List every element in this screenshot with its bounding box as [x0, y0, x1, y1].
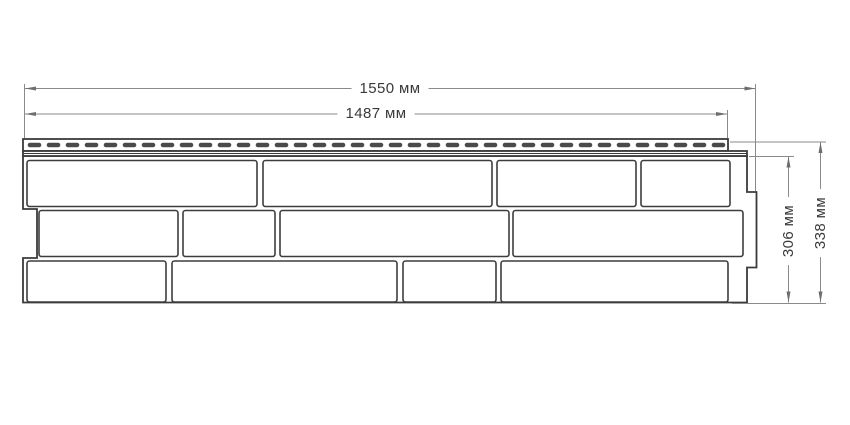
brick [172, 261, 397, 302]
brick [39, 211, 178, 257]
arrow-right-icon [716, 112, 727, 116]
brick [403, 261, 496, 302]
brick [513, 211, 743, 257]
bricks [27, 161, 743, 303]
dim-label-total-width: 1550 мм [352, 79, 429, 98]
arrow-up-icon [819, 142, 823, 153]
brick [263, 161, 492, 207]
arrow-down-icon [819, 292, 823, 303]
arrow-right-icon [745, 87, 756, 91]
brick [497, 161, 636, 207]
arrow-left-icon [25, 87, 36, 91]
brick [641, 161, 730, 207]
arrow-left-icon [25, 112, 36, 116]
arrow-down-icon [787, 292, 791, 303]
brick [27, 261, 166, 302]
arrow-up-icon [787, 157, 791, 168]
brick [27, 161, 257, 207]
brick [183, 211, 275, 257]
dim-label-body-height: 306 мм [779, 197, 798, 265]
brick [501, 261, 728, 302]
brick [280, 211, 509, 257]
dim-label-total-height: 338 мм [812, 189, 831, 257]
diagram-canvas: 1550 мм 1487 мм 306 мм 338 мм [0, 0, 850, 425]
dim-label-strip-width: 1487 мм [338, 105, 415, 124]
panel-technical-drawing [0, 0, 850, 425]
